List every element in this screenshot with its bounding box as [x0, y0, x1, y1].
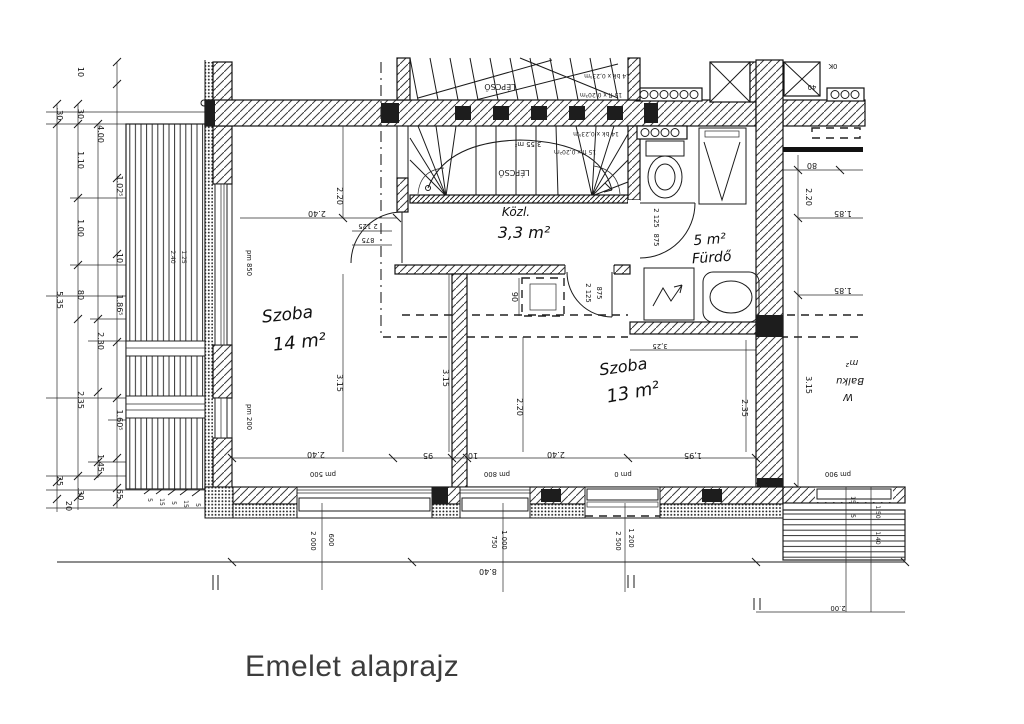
sill-height-label: pm 900: [825, 470, 851, 478]
dim-label: 40: [808, 83, 817, 91]
dim-label: 30: [76, 109, 85, 119]
dim-label: 3,25: [652, 342, 667, 350]
drawing-title: Emelet alaprajz: [245, 650, 459, 683]
dim-label: 1 000: [500, 530, 508, 549]
stair-spec: 14 bk x 0,23⁵m: [573, 130, 619, 137]
svg-text:m²: m²: [845, 357, 858, 367]
dim-label: 2.35: [76, 391, 85, 409]
dim-label: 2.20: [804, 188, 813, 206]
door-dim: 875: [652, 234, 660, 247]
dim-label: 600: [327, 534, 335, 547]
dim-label: 2 500: [614, 531, 622, 550]
dim-label: 1.86⁵: [115, 294, 124, 315]
dim-label: 10: [115, 253, 124, 263]
dim-label: 5: [849, 514, 856, 518]
dim-label: 15: [158, 498, 165, 506]
dim-label: 3.15: [804, 376, 813, 394]
dim-label: 1.10: [76, 151, 85, 169]
stair-spec: 15 fl x 0,20²m: [554, 148, 596, 155]
dim-label: .30: [76, 488, 85, 501]
left-balcony-deck: 2.40 1.25: [126, 124, 205, 489]
stair-spec: 14 bk x 0,23⁵m: [584, 72, 630, 79]
svg-text:W: W: [842, 391, 853, 402]
floor-plan-drawing: .30 5.35 25 20 10 30 1.10 1.00 80 2.35 .…: [0, 0, 1024, 724]
dim-label: 1.25: [180, 250, 187, 264]
dim-label: 3.15: [335, 374, 344, 392]
stair-spec: 15 fl x 0,20³m: [580, 91, 622, 98]
dim-label: 15: [849, 496, 856, 504]
dim-label: 2.30: [96, 332, 105, 350]
dim-label: 20: [64, 501, 73, 511]
sill-height-label: pm 850: [245, 250, 253, 276]
dim-label: 5.35: [55, 291, 64, 309]
stair-cut-band: [410, 195, 628, 203]
beam-line: [783, 147, 863, 152]
party-wall: [756, 60, 783, 490]
dim-label: 80: [807, 161, 817, 170]
dim-label: 2.20: [515, 398, 524, 416]
dim-label: 65: [115, 489, 124, 499]
dim-label: 80: [76, 290, 85, 300]
balcony-door-bottom: [585, 487, 660, 518]
window-left-lower: [215, 398, 227, 438]
radiator-icon: [637, 126, 687, 139]
radiator-icon: [827, 88, 864, 101]
dim-label: 1.02⁵: [115, 175, 124, 196]
dim-label: 1.85: [834, 286, 852, 295]
dim-label: 10: [76, 67, 85, 77]
stair-area: 3,55 m²: [514, 140, 541, 148]
sill-height-label: pm 0: [614, 470, 631, 478]
dim-label: 10: [468, 451, 478, 460]
dim-label: 5: [146, 498, 153, 502]
stair-label: LÉPCSŐ: [484, 82, 515, 93]
dim-label: 1.85: [834, 209, 852, 218]
dim-label: 2.40: [169, 250, 176, 264]
dim-label: 1.00: [76, 219, 85, 237]
stair-label: LÉPCSŐ: [498, 168, 529, 179]
dim-label: 90: [510, 292, 519, 302]
dim-label: 3.15: [441, 369, 450, 387]
dim-label: 0K: [828, 62, 837, 70]
dim-label: 2.40: [308, 209, 326, 218]
room-area: 3,3 m²: [498, 223, 551, 242]
radiator-icon: [636, 88, 702, 101]
dim-label: 1 50: [874, 505, 881, 519]
window-bottom-2: [460, 487, 530, 518]
window-left-upper: [215, 184, 227, 345]
dim-label: 4.00: [96, 125, 105, 143]
door-dim: 875: [595, 287, 603, 300]
dim-label: 15: [182, 500, 189, 508]
dim-label: 2.00: [830, 604, 845, 612]
room-area: 5 m²: [693, 231, 727, 249]
room-name: Közl.: [502, 205, 530, 219]
sill-height-label: pm 800: [484, 470, 510, 478]
dim-label: 1 40: [874, 531, 881, 545]
dim-label: 2.40: [547, 450, 565, 459]
dim-label: 25: [55, 476, 64, 486]
svg-text:Balku: Balku: [836, 375, 864, 386]
dim-label: 2 000: [309, 531, 317, 550]
dim-label: 2.35: [740, 399, 749, 417]
dim-label: .30: [55, 108, 64, 121]
door-dim: 2 125: [652, 208, 660, 227]
dim-label: 1,95: [684, 451, 702, 460]
door-dim: 875: [362, 236, 375, 244]
dim-label: 1.45: [96, 454, 105, 472]
dim-label: 1.60⁵: [115, 409, 124, 430]
room-name: Fürdő: [691, 249, 732, 268]
dim-label: 95: [423, 451, 433, 460]
dim-label: 2.20: [335, 187, 344, 205]
dim-label: 8.40: [479, 567, 497, 576]
dim-label: 2.40: [307, 450, 325, 459]
sill-height-label: pm 200: [245, 404, 253, 430]
dim-label: 750: [490, 536, 498, 549]
door-dim: 2 125: [584, 283, 592, 302]
window-bottom-1: [297, 487, 432, 518]
sill-height-label: pm 500: [310, 470, 336, 478]
dim-label: 5: [170, 501, 177, 505]
door-dim: 2 125: [358, 222, 377, 230]
dim-label: 1 200: [627, 528, 635, 547]
dim-label: 5: [194, 503, 201, 507]
